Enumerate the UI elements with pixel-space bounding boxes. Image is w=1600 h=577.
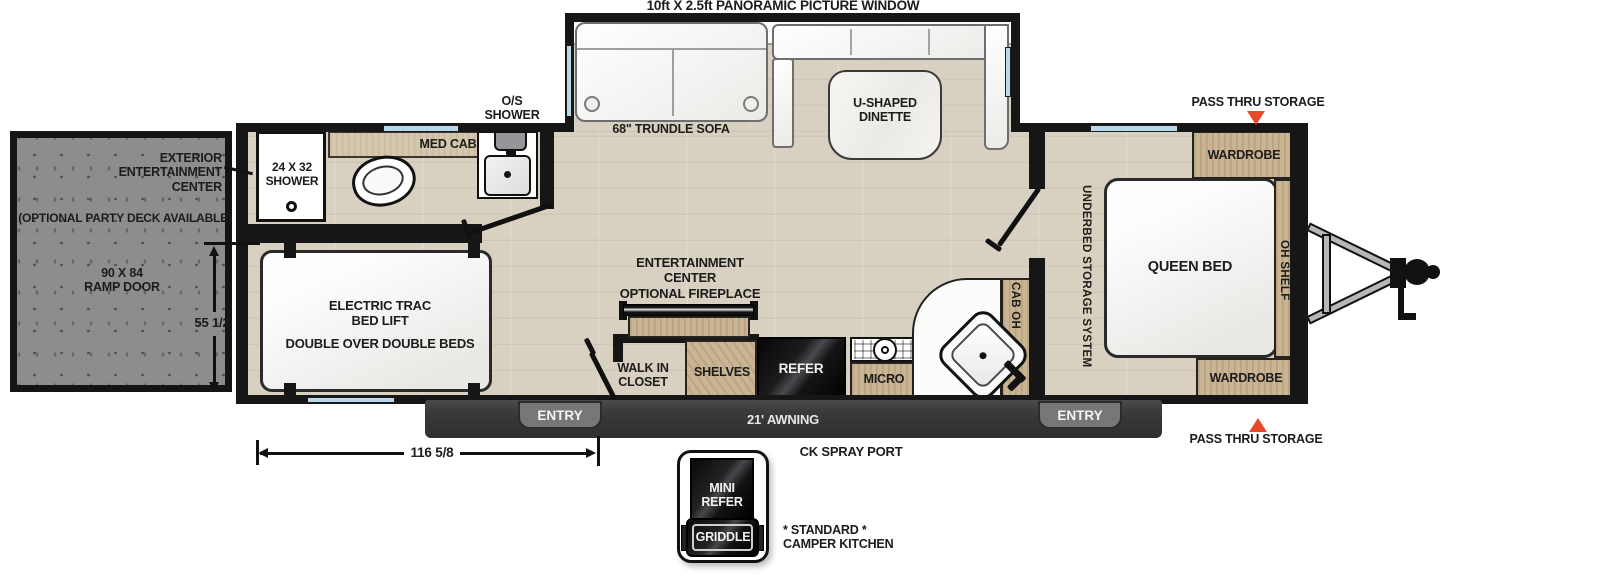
ec-rail xyxy=(623,304,754,316)
shower-label: 24 X 32 SHOWER xyxy=(266,161,319,188)
entry-badge-right: ENTRY xyxy=(1038,401,1122,429)
entry-label: ENTRY xyxy=(537,408,582,423)
dim-arrow-up xyxy=(209,246,219,256)
med-cab-label: MED CAB xyxy=(420,137,477,151)
dim-55-label: 55 1/2 xyxy=(195,316,230,331)
window xyxy=(566,45,572,117)
closet-label: WALK IN CLOSET xyxy=(617,361,668,390)
bed-lift-label: ELECTRIC TRAC BED LIFT DOUBLE OVER DOUBL… xyxy=(286,299,475,351)
bed-track xyxy=(284,242,296,258)
travel-trailer-floorplan: ENTRY ENTRY 10ft X 2.5ft PANORAMIC PICTU… xyxy=(0,0,1600,577)
bedroom-partition xyxy=(1029,258,1045,398)
party-deck-label: (OPTIONAL PARTY DECK AVAILABLE) xyxy=(18,212,232,226)
bathroom-divider-wall xyxy=(246,224,482,243)
underbed-storage-label: UNDERBED STORAGE SYSTEM xyxy=(1080,185,1092,367)
window xyxy=(1090,125,1178,132)
sofa-armrest xyxy=(584,96,600,112)
dim-arrow-down xyxy=(209,382,219,392)
hitch-assembly xyxy=(1306,212,1446,337)
refer-label: REFER xyxy=(779,361,824,376)
griddle-label: GRIDDLE xyxy=(696,530,751,544)
shower-drain xyxy=(286,201,297,212)
oh-shelf-label: OH SHELF xyxy=(1278,240,1290,301)
shelves-label: SHELVES xyxy=(694,365,750,379)
wardrobe-bottom-label: WARDROBE xyxy=(1210,371,1283,385)
trundle-sofa xyxy=(575,22,768,122)
ramp-door-label: 90 X 84 RAMP DOOR xyxy=(84,266,160,295)
bedroom-partition xyxy=(1029,129,1045,189)
dim-116-label: 116 5/8 xyxy=(411,445,454,460)
pass-thru-arrow-down xyxy=(1247,111,1265,125)
queen-bed-label: QUEEN BED xyxy=(1148,259,1232,276)
wardrobe-top-label: WARDROBE xyxy=(1208,148,1281,162)
pass-thru-top-label: PASS THRU STORAGE xyxy=(1192,95,1325,109)
dinette-bench-left xyxy=(772,58,794,148)
slideout-side-wall xyxy=(1011,13,1020,132)
standard-camper-kitchen-note: * STANDARD * CAMPER KITCHEN xyxy=(783,523,893,552)
entry-badge-left: ENTRY xyxy=(518,401,602,429)
ck-spray-port-label: CK SPRAY PORT xyxy=(800,445,903,460)
page-title: 10ft X 2.5ft PANORAMIC PICTURE WINDOW xyxy=(647,0,920,13)
awning-label: 21' AWNING xyxy=(747,413,819,428)
dinette-label: U-SHAPED DINETTE xyxy=(853,96,917,125)
mini-refer-label: MINI REFER xyxy=(701,481,742,510)
sofa-armrest xyxy=(743,96,759,112)
os-shower-label: O/S SHOWER xyxy=(484,94,539,123)
slideout-top-wall xyxy=(565,13,1020,22)
bathroom-side-wall xyxy=(540,129,554,209)
exterior-ec-label: EXTERIOR ENTERTAINMENT CENTER xyxy=(92,151,222,194)
os-shower-faucet xyxy=(494,131,527,151)
window xyxy=(307,397,395,403)
pass-thru-arrow-up xyxy=(1249,418,1267,432)
bed-track xyxy=(468,242,480,258)
front-wall xyxy=(236,123,248,404)
sofa-label: 68" TRUNDLE SOFA xyxy=(612,122,729,136)
window xyxy=(383,125,459,132)
micro-label: MICRO xyxy=(864,372,905,386)
pass-thru-bottom-label: PASS THRU STORAGE xyxy=(1190,432,1323,446)
dim-arrow-right xyxy=(586,448,596,458)
entertainment-center-label: ENTERTAINMENT CENTER OPTIONAL FIREPLACE xyxy=(620,256,761,301)
window xyxy=(1005,47,1011,97)
entry-label: ENTRY xyxy=(1057,408,1102,423)
dim-arrow-left xyxy=(258,448,268,458)
cooktop xyxy=(850,337,918,362)
entertainment-center-cabinet xyxy=(628,316,750,338)
dinette-bench-back xyxy=(772,24,1008,60)
cab-oh-label: CAB OH xyxy=(1009,282,1021,329)
